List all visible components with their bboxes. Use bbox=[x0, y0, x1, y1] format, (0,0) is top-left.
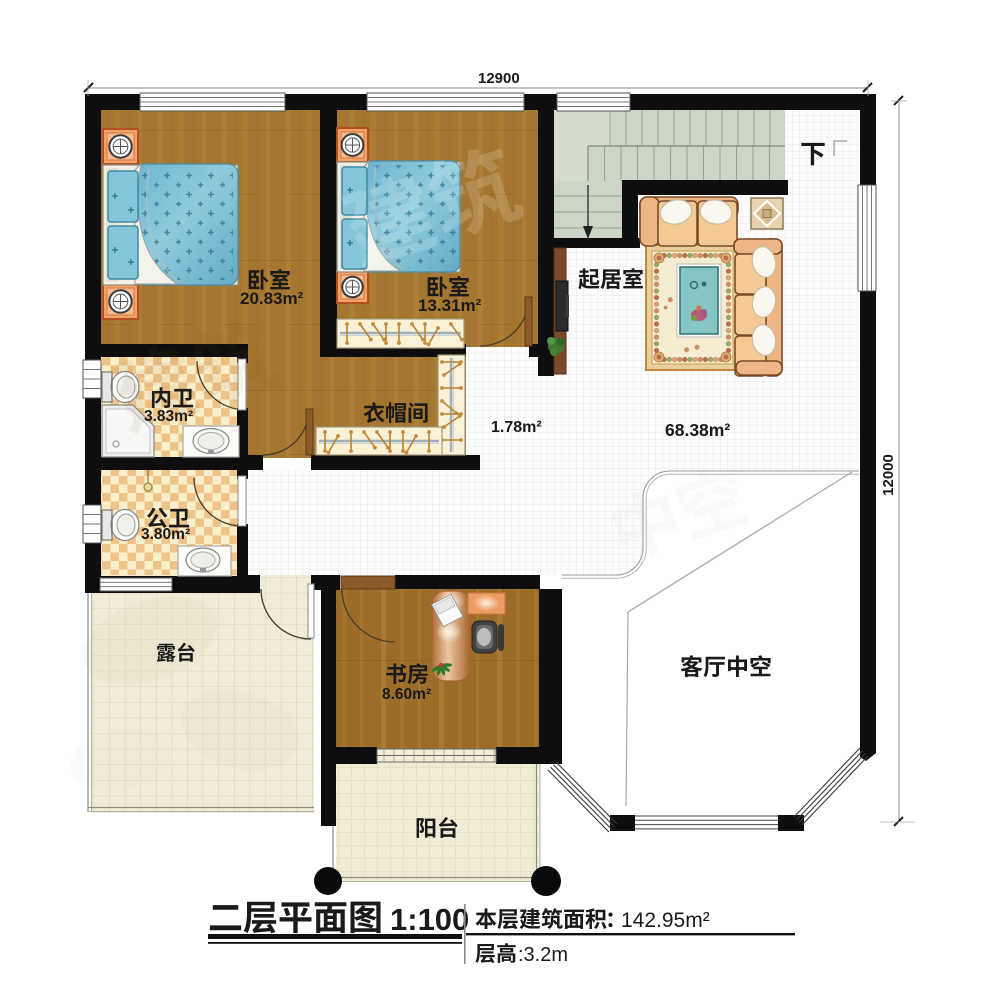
svg-text:20.83m²: 20.83m² bbox=[240, 289, 304, 308]
svg-text:142.95m²: 142.95m² bbox=[621, 909, 710, 932]
svg-text:1.78m²: 1.78m² bbox=[491, 419, 542, 436]
svg-text:3.80m²: 3.80m² bbox=[141, 526, 190, 543]
svg-text::3.2m: :3.2m bbox=[518, 944, 568, 966]
svg-text:8.60m²: 8.60m² bbox=[382, 686, 431, 703]
svg-text:68.38m²: 68.38m² bbox=[665, 420, 730, 440]
svg-text:12000: 12000 bbox=[880, 454, 897, 496]
svg-text:13.31m²: 13.31m² bbox=[418, 296, 482, 315]
svg-text:1:100: 1:100 bbox=[390, 902, 469, 937]
svg-text:12900: 12900 bbox=[478, 70, 520, 87]
